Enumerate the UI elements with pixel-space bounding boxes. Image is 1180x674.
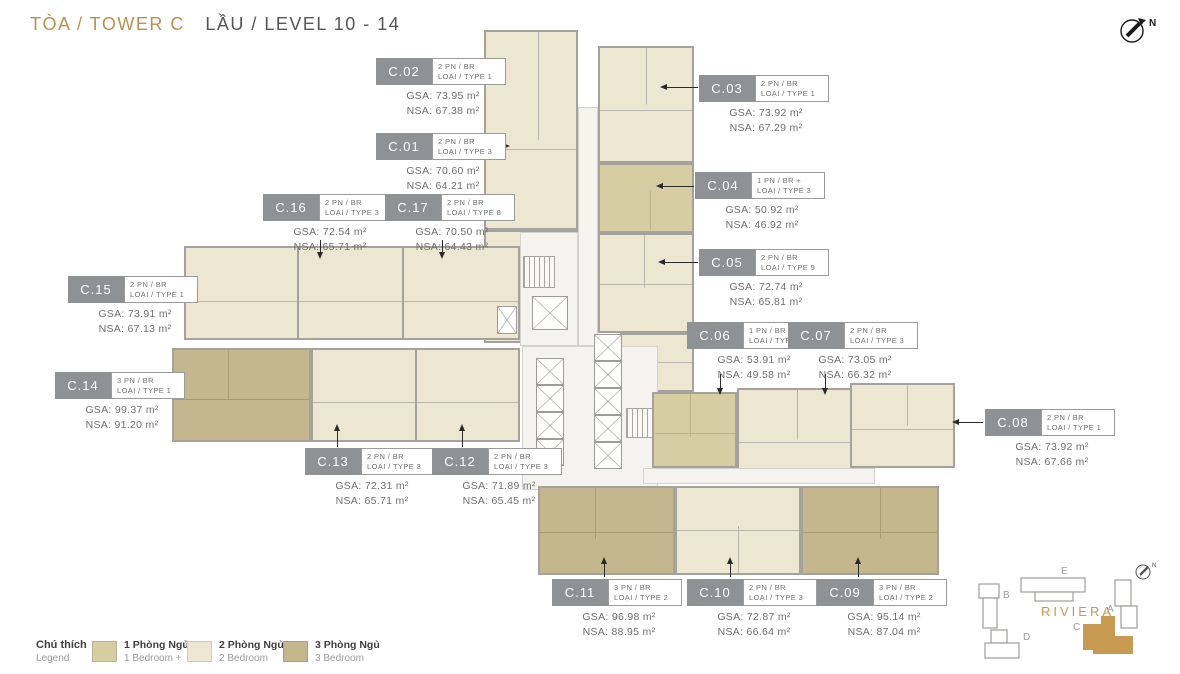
site-map-compass-icon: N xyxy=(1136,563,1156,579)
site-building-c-label: C xyxy=(1073,622,1080,633)
unit-type: 2 PN / BRLOẠI / TYPE 1 xyxy=(755,75,829,102)
unit-id: C.01 xyxy=(376,133,432,160)
unit-gsa: GSA: 73.05 m² xyxy=(788,354,922,366)
unit-type: 2 PN / BRLOẠI / TYPE 3 xyxy=(319,194,393,221)
unit-type: 3 PN / BRLOẠI / TYPE 1 xyxy=(111,372,185,399)
unit-gsa: GSA: 73.92 m² xyxy=(985,441,1119,453)
unit-type: 2 PN / BRLOẠI / TYPE 3 xyxy=(844,322,918,349)
unit-nsa: NSA: 67.66 m² xyxy=(985,456,1119,468)
elevator-9 xyxy=(594,442,622,469)
unit-label-c07: C.07 2 PN / BRLOẠI / TYPE 3 GSA: 73.05 m… xyxy=(788,322,922,381)
unit-label-c16: C.16 2 PN / BRLOẠI / TYPE 3 GSA: 72.54 m… xyxy=(263,194,397,253)
unit-nsa: NSA: 66.64 m² xyxy=(687,626,821,638)
legend-swatch-2br xyxy=(187,641,212,662)
unit-nsa: NSA: 65.71 m² xyxy=(305,495,439,507)
unit-area-c09 xyxy=(801,486,939,575)
unit-label-c01: C.01 2 PN / BRLOẠI / TYPE 3 GSA: 70.60 m… xyxy=(376,133,510,192)
unit-gsa: GSA: 72.54 m² xyxy=(263,226,397,238)
legend-label-2br-en: 2 Bedroom xyxy=(219,653,268,664)
elevator-3 xyxy=(536,412,564,439)
stairs-core-left xyxy=(523,256,555,288)
unit-id: C.14 xyxy=(55,372,111,399)
connector-c03 xyxy=(666,87,698,88)
unit-gsa: GSA: 95.14 m² xyxy=(817,611,951,623)
unit-gsa: GSA: 72.87 m² xyxy=(687,611,821,623)
unit-id: C.07 xyxy=(788,322,844,349)
unit-label-c11: C.11 3 PN / BRLOẠI / TYPE 2 GSA: 96.98 m… xyxy=(552,579,686,638)
unit-label-c08: C.08 2 PN / BRLOẠI / TYPE 1 GSA: 73.92 m… xyxy=(985,409,1119,468)
unit-id: C.08 xyxy=(985,409,1041,436)
unit-nsa: NSA: 66.32 m² xyxy=(788,369,922,381)
connector-c05 xyxy=(664,262,698,263)
legend-label-2br-vi: 2 Phòng Ngủ xyxy=(219,639,284,651)
elevator-1 xyxy=(536,358,564,385)
site-building-e-label: E xyxy=(1061,566,1068,577)
unit-area-c10 xyxy=(675,486,801,575)
site-building-d-label: D xyxy=(1023,632,1030,643)
site-building-b-label: B xyxy=(1003,590,1010,601)
connector-c09 xyxy=(858,563,859,577)
unit-gsa: GSA: 50.92 m² xyxy=(695,204,829,216)
elevator-2 xyxy=(536,385,564,412)
unit-label-c15: C.15 2 PN / BRLOẠI / TYPE 1 GSA: 73.91 m… xyxy=(68,276,202,335)
unit-area-c08 xyxy=(850,383,955,468)
connector-c08 xyxy=(958,422,983,423)
unit-gsa: GSA: 73.92 m² xyxy=(699,107,833,119)
unit-label-c05: C.05 2 PN / BRLOẠI / TYPE 9 GSA: 72.74 m… xyxy=(699,249,833,308)
unit-type: 2 PN / BRLOẠI / TYPE 3 xyxy=(361,448,435,475)
connector-c04 xyxy=(662,186,694,187)
unit-type: 3 PN / BRLOẠI / TYPE 2 xyxy=(873,579,947,606)
unit-label-c09: C.09 3 PN / BRLOẠI / TYPE 2 GSA: 95.14 m… xyxy=(817,579,951,638)
legend-swatch-1br xyxy=(92,641,117,662)
unit-id: C.11 xyxy=(552,579,608,606)
connector-c12 xyxy=(462,430,463,447)
unit-nsa: NSA: 91.20 m² xyxy=(55,419,189,431)
unit-label-c17: C.17 2 PN / BRLOẠI / TYPE 8 GSA: 70.50 m… xyxy=(385,194,519,253)
unit-nsa: NSA: 67.38 m² xyxy=(376,105,510,117)
corridor-right xyxy=(643,468,875,484)
unit-id: C.06 xyxy=(687,322,743,349)
unit-type: 2 PN / BRLOẠI / TYPE 3 xyxy=(743,579,817,606)
unit-gsa: GSA: 96.98 m² xyxy=(552,611,686,623)
unit-area-c05 xyxy=(598,233,694,333)
unit-id: C.05 xyxy=(699,249,755,276)
unit-type: 2 PN / BRLOẠI / TYPE 3 xyxy=(488,448,562,475)
level-title: LẦU / LEVEL 10 - 14 xyxy=(205,14,400,34)
unit-nsa: NSA: 87.04 m² xyxy=(817,626,951,638)
connector-c13 xyxy=(337,430,338,447)
unit-type: 2 PN / BRLOẠI / TYPE 1 xyxy=(124,276,198,303)
unit-gsa: GSA: 72.31 m² xyxy=(305,480,439,492)
unit-type: 2 PN / BRLOẠI / TYPE 9 xyxy=(755,249,829,276)
unit-label-c02: C.02 2 PN / BRLOẠI / TYPE 1 GSA: 73.95 m… xyxy=(376,58,510,117)
legend-label-3br-vi: 3 Phòng Ngủ xyxy=(315,639,380,651)
unit-nsa: NSA: 65.81 m² xyxy=(699,296,833,308)
unit-id: C.03 xyxy=(699,75,755,102)
unit-area-c06 xyxy=(652,392,737,468)
compass-n-label: N xyxy=(1149,18,1156,29)
unit-gsa: GSA: 73.91 m² xyxy=(68,308,202,320)
unit-gsa: GSA: 72.74 m² xyxy=(699,281,833,293)
unit-gsa: GSA: 99.37 m² xyxy=(55,404,189,416)
unit-id: C.16 xyxy=(263,194,319,221)
unit-nsa: NSA: 65.45 m² xyxy=(432,495,566,507)
unit-id: C.04 xyxy=(695,172,751,199)
legend-swatch-3br xyxy=(283,641,308,662)
unit-area-c04 xyxy=(598,163,694,233)
floorplan-page: TÒA / TOWER C LẦU / LEVEL 10 - 14 N xyxy=(0,0,1180,674)
unit-id: C.09 xyxy=(817,579,873,606)
unit-label-c10: C.10 2 PN / BRLOẠI / TYPE 3 GSA: 72.87 m… xyxy=(687,579,821,638)
unit-gsa: GSA: 70.60 m² xyxy=(376,165,510,177)
legend-label-1br-en: 1 Bedroom + xyxy=(124,653,182,664)
unit-type: 2 PN / BRLOẠI / TYPE 8 xyxy=(441,194,515,221)
project-name: RIVIERA xyxy=(1041,604,1114,619)
elevator-core-left xyxy=(532,296,568,330)
elevator-7 xyxy=(594,388,622,415)
unit-label-c03: C.03 2 PN / BRLOẠI / TYPE 1 GSA: 73.92 m… xyxy=(699,75,833,134)
unit-id: C.13 xyxy=(305,448,361,475)
legend-label-3br-en: 3 Bedroom xyxy=(315,653,364,664)
unit-label-c14: C.14 3 PN / BRLOẠI / TYPE 1 GSA: 99.37 m… xyxy=(55,372,189,431)
unit-label-c13: C.13 2 PN / BRLOẠI / TYPE 3 GSA: 72.31 m… xyxy=(305,448,439,507)
compass-graphic: N xyxy=(1116,12,1162,46)
unit-nsa: NSA: 46.92 m² xyxy=(695,219,829,231)
connector-c10 xyxy=(730,563,731,577)
unit-area-c14 xyxy=(172,348,311,442)
connector-c11 xyxy=(604,563,605,577)
unit-type: 2 PN / BRLOẠI / TYPE 1 xyxy=(432,58,506,85)
unit-type: 3 PN / BRLOẠI / TYPE 2 xyxy=(608,579,682,606)
unit-gsa: GSA: 71.89 m² xyxy=(432,480,566,492)
unit-nsa: NSA: 64.43 m² xyxy=(385,241,519,253)
unit-area-c03 xyxy=(598,46,694,163)
unit-id: C.17 xyxy=(385,194,441,221)
page-title: TÒA / TOWER C LẦU / LEVEL 10 - 14 xyxy=(30,14,400,35)
elevator-6 xyxy=(594,361,622,388)
corridor-top xyxy=(578,107,598,346)
unit-id: C.02 xyxy=(376,58,432,85)
unit-label-c12: C.12 2 PN / BRLOẠI / TYPE 3 GSA: 71.89 m… xyxy=(432,448,566,507)
elevator-8 xyxy=(594,415,622,442)
unit-nsa: NSA: 67.29 m² xyxy=(699,122,833,134)
unit-gsa: GSA: 73.95 m² xyxy=(376,90,510,102)
elevator-left-wing xyxy=(497,306,517,334)
unit-id: C.10 xyxy=(687,579,743,606)
tower-title: TÒA / TOWER C xyxy=(30,14,185,34)
unit-type: 2 PN / BRLOẠI / TYPE 3 xyxy=(432,133,506,160)
unit-label-c04: C.04 1 PN / BR +LOẠI / TYPE 3 GSA: 50.92… xyxy=(695,172,829,231)
unit-type: 2 PN / BRLOẠI / TYPE 1 xyxy=(1041,409,1115,436)
unit-nsa: NSA: 64.21 m² xyxy=(376,180,510,192)
unit-id: C.15 xyxy=(68,276,124,303)
unit-area-c15-c16-c17 xyxy=(184,246,520,340)
unit-nsa: NSA: 67.13 m² xyxy=(68,323,202,335)
unit-type: 1 PN / BR +LOẠI / TYPE 3 xyxy=(751,172,825,199)
unit-nsa: NSA: 88.95 m² xyxy=(552,626,686,638)
elevator-5 xyxy=(594,334,622,361)
legend-title: Chú thích xyxy=(36,639,87,651)
unit-area-c13-c12 xyxy=(311,348,520,442)
unit-id: C.12 xyxy=(432,448,488,475)
site-compass-n-label: N xyxy=(1152,563,1156,569)
legend-title-en: Legend xyxy=(36,653,69,664)
unit-gsa: GSA: 70.50 m² xyxy=(385,226,519,238)
north-compass-icon: N xyxy=(1116,12,1162,51)
unit-nsa: NSA: 65.71 m² xyxy=(263,241,397,253)
